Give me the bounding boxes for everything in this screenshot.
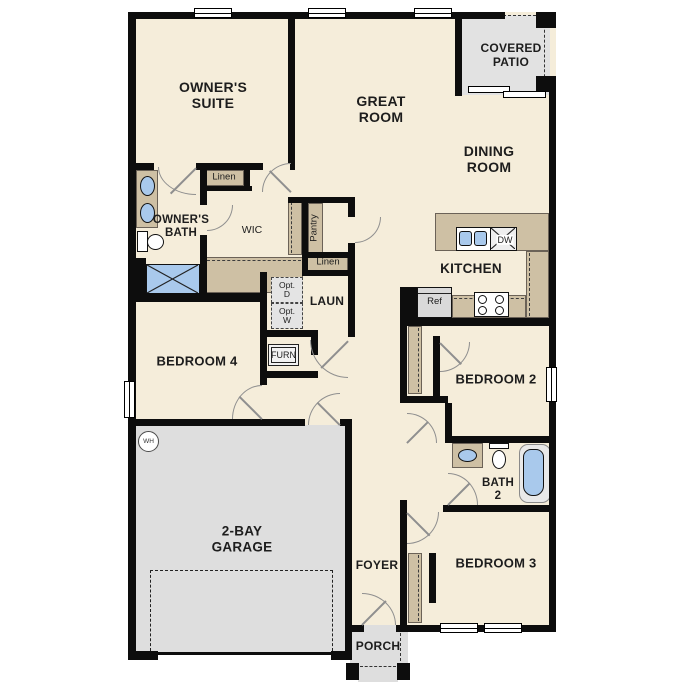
- wall: [396, 625, 408, 632]
- bathtub-basin: [523, 449, 544, 496]
- bathtub: [519, 444, 551, 503]
- refrigerator-label: Ref: [427, 297, 442, 308]
- shower: [146, 264, 200, 295]
- wall: [446, 436, 556, 443]
- patio-sliding-door: [503, 91, 546, 98]
- optional-dryer: Opt. D: [271, 277, 303, 303]
- wall: [200, 235, 207, 298]
- room-label-great-room: GREAT ROOM: [356, 93, 405, 125]
- window: [124, 381, 135, 418]
- wall: [331, 651, 352, 660]
- furnace-label: FURN: [271, 350, 296, 360]
- room-label-kitchen: KITCHEN: [440, 261, 502, 277]
- room-label-foyer: FOYER: [356, 559, 399, 573]
- wall: [260, 272, 267, 385]
- bath2-sink: [458, 449, 477, 462]
- wall: [128, 651, 158, 660]
- closet-label-linen-lower: Linen: [316, 258, 339, 269]
- wall: [408, 625, 556, 632]
- window: [484, 623, 522, 633]
- wall: [400, 287, 417, 322]
- stove-burner: [478, 295, 487, 304]
- kitchen-sink-basin-right: [474, 231, 487, 246]
- bath2-toilet-tank: [489, 443, 509, 449]
- wall: [262, 371, 318, 378]
- room-label-owners-bath: OWNER'S BATH: [153, 214, 209, 240]
- dishwasher: DW: [490, 227, 517, 251]
- floor-plan: DW Ref Opt. D Opt. W FURN WH: [0, 0, 687, 687]
- bedroom3-closet-shelf: [408, 553, 422, 623]
- owners-bath-sink-1: [140, 176, 155, 196]
- water-heater-label: WH: [143, 438, 154, 445]
- wall: [433, 336, 440, 396]
- wall: [400, 500, 407, 512]
- room-label-laundry: LAUN: [310, 295, 344, 309]
- wall: [244, 170, 250, 191]
- optional-washer: Opt. W: [271, 303, 303, 329]
- wall: [348, 257, 355, 337]
- room-label-bedroom2: BEDROOM 2: [456, 373, 537, 388]
- wall: [196, 163, 263, 170]
- window: [440, 623, 478, 633]
- optional-washer-label: Opt. W: [279, 307, 295, 326]
- garage-door-recess: [150, 570, 333, 651]
- wall: [302, 197, 308, 272]
- stove-burner: [495, 295, 504, 304]
- room-label-wic: WIC: [242, 224, 262, 236]
- closet-label-linen-upper: Linen: [212, 173, 235, 184]
- window: [414, 8, 452, 18]
- dishwasher-label: DW: [497, 235, 514, 245]
- wall: [128, 12, 136, 659]
- wic-shelf-right: [288, 200, 302, 255]
- room-label-bath2: BATH 2: [482, 477, 514, 503]
- wall: [288, 197, 355, 203]
- wall: [455, 12, 462, 96]
- kitchen-sink-basin-left: [459, 231, 472, 246]
- optional-dryer-label: Opt. D: [279, 281, 295, 300]
- porch-dash-horizontal: [360, 666, 396, 667]
- room-label-dining-room: DINING ROOM: [464, 143, 515, 175]
- wall: [128, 293, 267, 302]
- garage-door-line: [158, 652, 331, 655]
- room-label-owners-suite: OWNER'S SUITE: [179, 79, 247, 111]
- window: [308, 8, 346, 18]
- room-label-bedroom3: BEDROOM 3: [456, 557, 537, 572]
- wall: [549, 90, 556, 632]
- wall: [400, 318, 556, 326]
- wall: [346, 663, 359, 680]
- bedroom2-closet-shelf: [408, 326, 422, 394]
- furnace: FURN: [268, 344, 299, 366]
- wall: [348, 197, 355, 217]
- wall: [345, 419, 352, 658]
- wall: [429, 553, 436, 603]
- wall: [128, 419, 305, 426]
- bath2-toilet-bowl: [492, 450, 506, 469]
- porch-step: [358, 666, 398, 682]
- kitchen-counter-right: [526, 251, 549, 318]
- room-label-porch: PORCH: [356, 640, 401, 654]
- wall: [443, 505, 556, 512]
- room-label-covered-patio: COVERED PATIO: [480, 42, 541, 70]
- wall: [397, 663, 410, 680]
- closet-label-pantry: Pantry: [310, 214, 321, 241]
- kitchen-sink: [456, 227, 491, 251]
- window: [194, 8, 232, 18]
- stove-burner: [478, 306, 487, 315]
- wall: [128, 163, 154, 170]
- wall: [400, 512, 407, 625]
- room-label-garage: 2-BAY GARAGE: [212, 523, 273, 554]
- window: [546, 367, 557, 402]
- stove-burner: [495, 306, 504, 315]
- stove: [474, 292, 509, 317]
- wall: [400, 396, 448, 403]
- wall: [536, 12, 556, 28]
- water-heater: WH: [138, 431, 159, 452]
- wall: [128, 258, 146, 295]
- room-label-bedroom4: BEDROOM 4: [157, 355, 238, 370]
- wall: [262, 330, 318, 337]
- wall: [288, 19, 295, 163]
- wall: [400, 322, 407, 403]
- refrigerator: Ref: [417, 287, 452, 318]
